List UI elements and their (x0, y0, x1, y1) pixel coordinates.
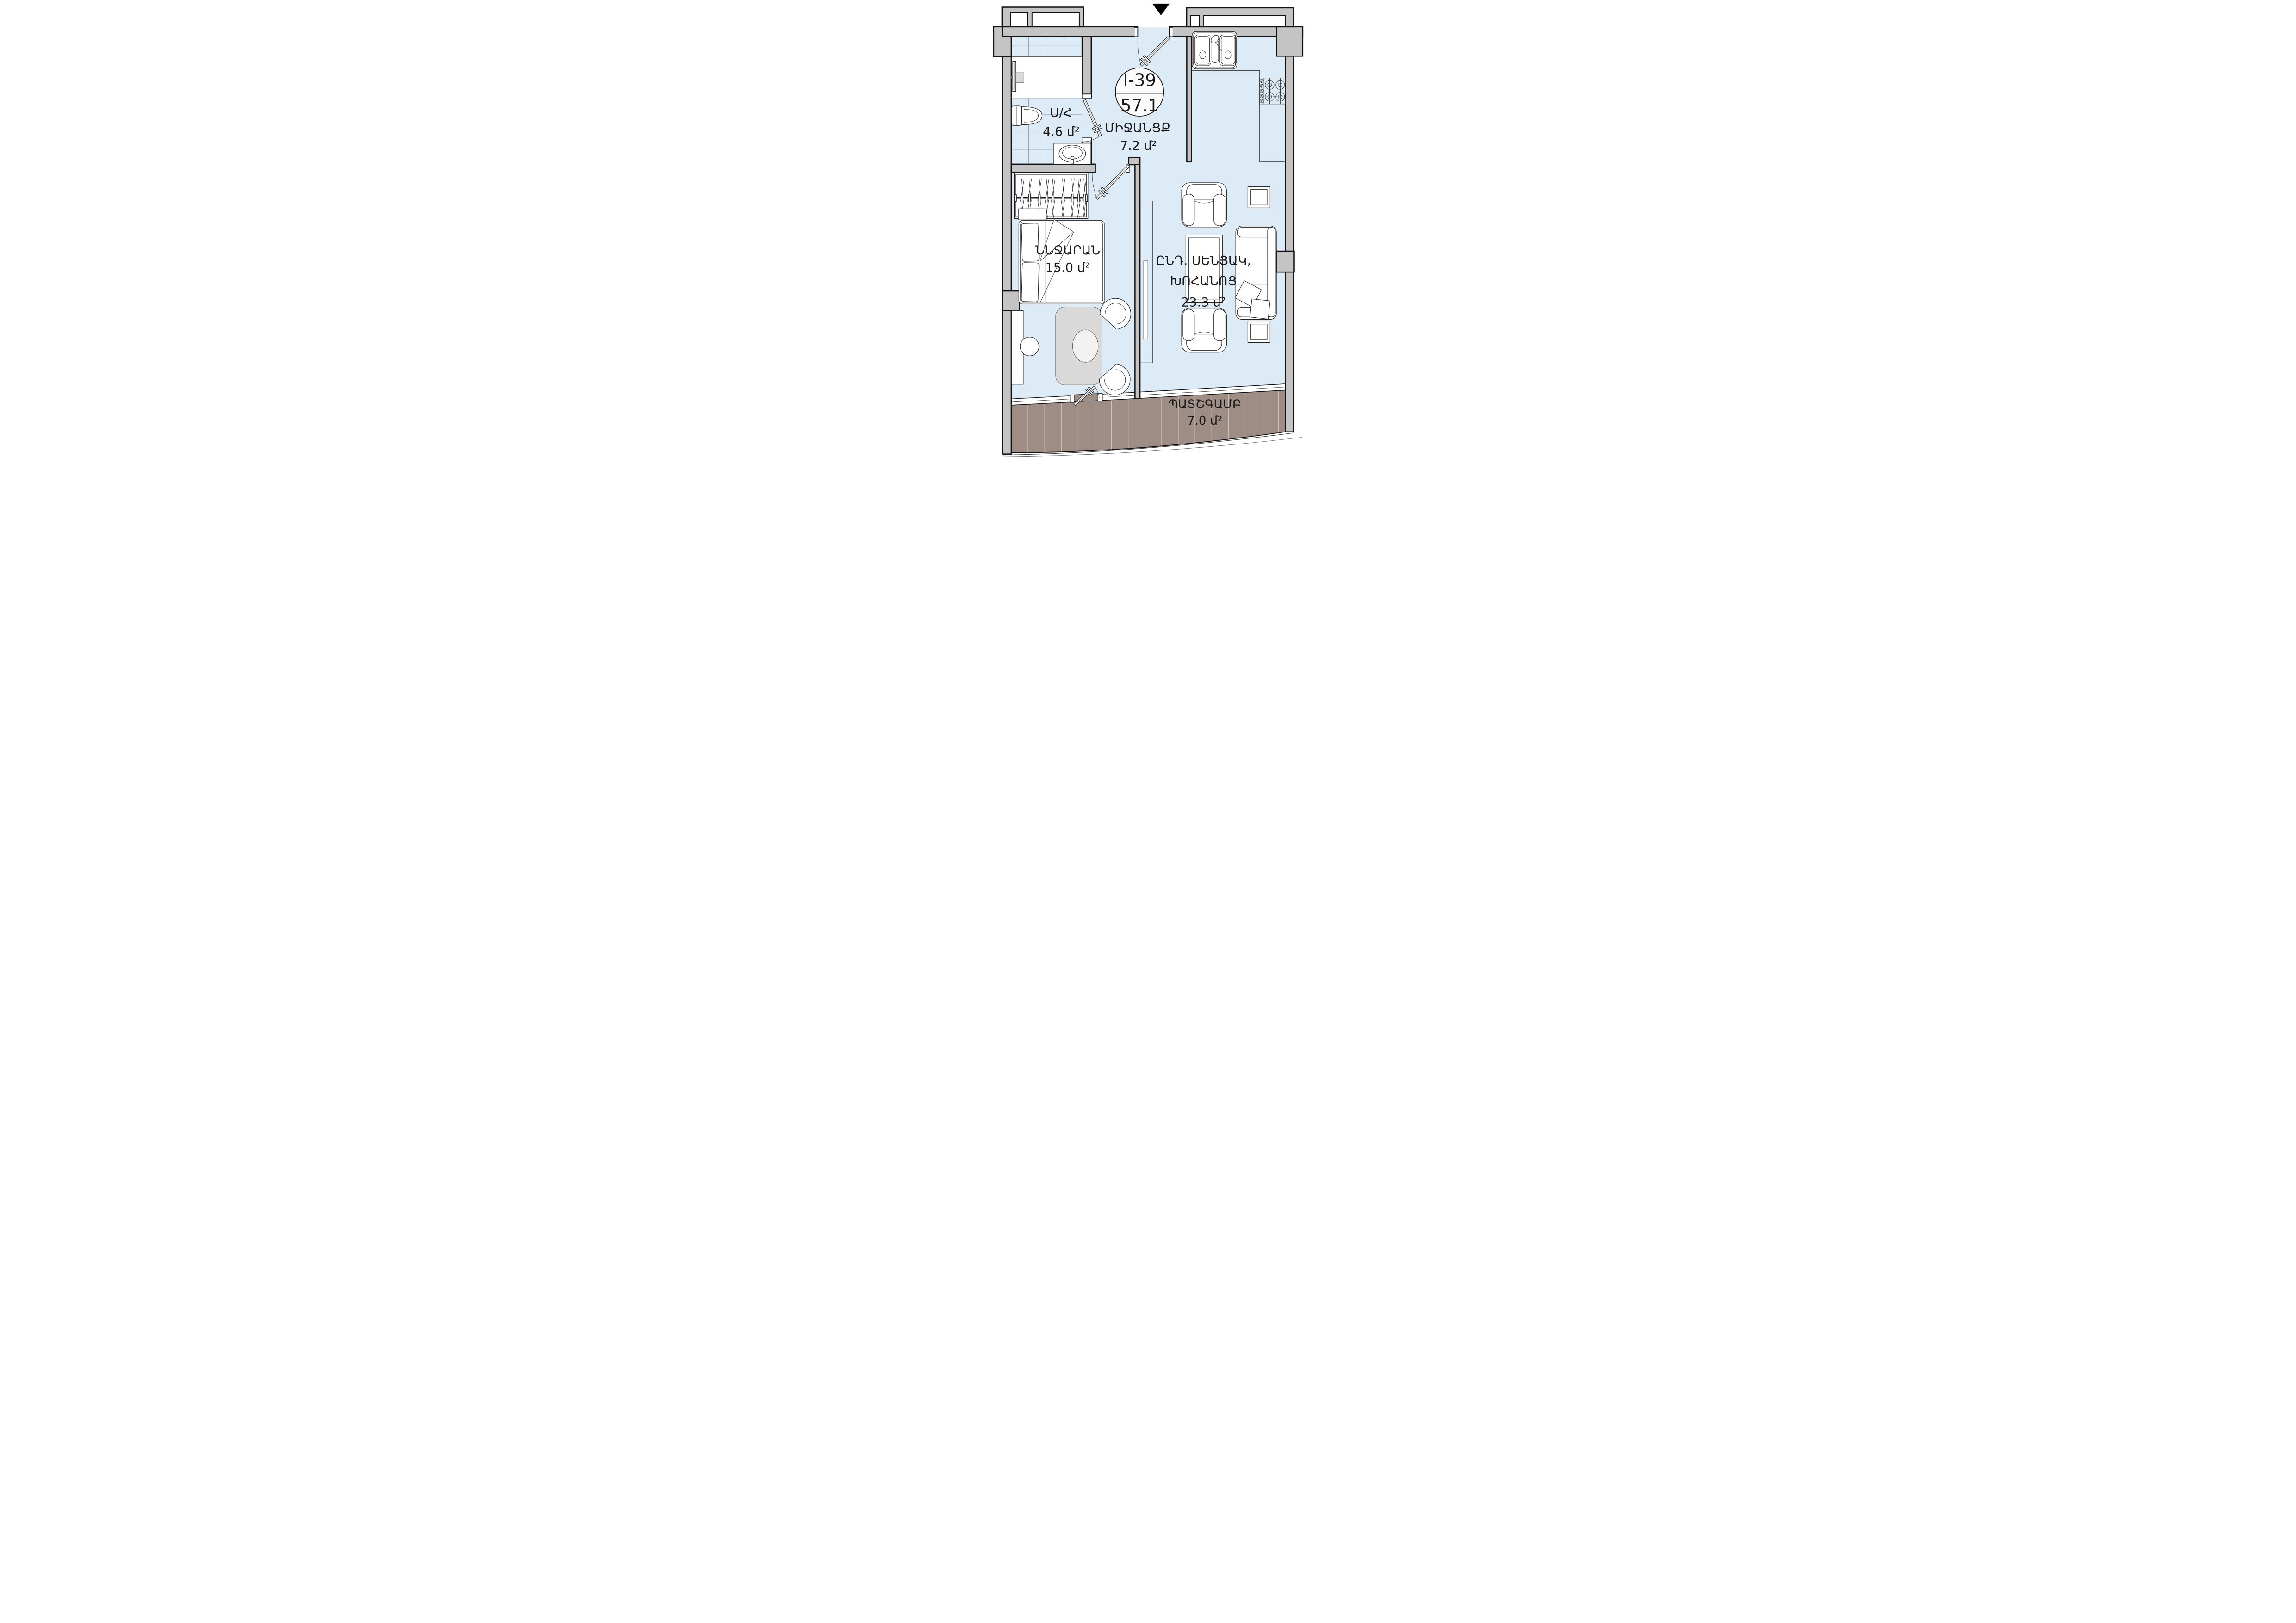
wall-pilaster-right (1276, 251, 1294, 272)
balcony-name: ՊԱՏՇԳԱՄԲ (1168, 397, 1241, 411)
bath-door-jamb-top (1082, 94, 1091, 98)
wall-corner-top-right (1276, 27, 1302, 56)
wall-right (1285, 56, 1293, 432)
wall-top-left-band (1003, 27, 1138, 37)
pillow-2 (1021, 263, 1039, 302)
wall-left (1003, 27, 1011, 454)
armchair-bottom (1182, 308, 1226, 352)
floor-plan: I-39 57.1 Ս/Հ 4.6 մ² ՄԻՋԱՆՑՔ 7.2 մ² ՆՆՋԱ… (824, 0, 1472, 458)
side-table-bottom (1248, 321, 1270, 342)
bedroom-name: ՆՆՋԱՐԱՆ (1035, 243, 1100, 258)
bedroom-area: 15.0 մ² (1045, 260, 1090, 275)
bath-door-jamb-bottom (1082, 138, 1091, 142)
wall-bathroom-right-upper (1082, 37, 1091, 94)
living-name-line2: ԽՈՀԱՆՈՑ (1170, 274, 1237, 288)
parapet-top-left (1002, 7, 1083, 27)
balcony-area: 7.0 մ² (1187, 414, 1222, 428)
bedroom-table (1055, 307, 1102, 385)
entrance-arrow-icon (1152, 4, 1169, 15)
unit-code: I-39 (1123, 70, 1156, 90)
hallway-name: ՄԻՋԱՆՑՔ (1104, 121, 1170, 136)
unit-badge: I-39 57.1 (1115, 68, 1163, 116)
tv (1144, 261, 1148, 339)
wall-pilaster-left (1003, 291, 1020, 310)
wall-kitchen-divider (1187, 37, 1191, 162)
entry-jamb-left (1134, 27, 1137, 37)
entry-threshold-floor (1138, 27, 1170, 37)
coffee-table (1186, 235, 1222, 303)
living-name-line1: ԸՆԴ. ՍԵՆՅԱԿ, (1156, 254, 1250, 268)
parapet-top-right (1187, 8, 1293, 27)
floor-plan-canvas: I-39 57.1 Ս/Հ 4.6 մ² ՄԻՋԱՆՑՔ 7.2 մ² ՆՆՋԱ… (824, 0, 1472, 458)
sofa (1235, 226, 1276, 320)
armchair-top (1182, 183, 1226, 227)
bathroom-area: 4.6 մ² (1043, 124, 1080, 139)
bathroom-name: Ս/Հ (1050, 105, 1072, 120)
wall-bedroom-door-jog (1128, 157, 1139, 165)
desk-chair (1020, 337, 1039, 356)
balcony-door-jamb-left (1070, 395, 1074, 402)
kitchen-sink (1192, 31, 1236, 69)
sofa-pillow-2 (1250, 299, 1269, 319)
bathroom-sink-vanity (1053, 143, 1090, 164)
nightstand (1018, 209, 1046, 220)
living-area: 23.3 մ² (1181, 295, 1226, 309)
wall-bathroom-bottom (1011, 164, 1095, 172)
unit-area: 57.1 (1120, 95, 1158, 116)
entry-jamb-right (1170, 27, 1173, 37)
side-table-top (1248, 186, 1270, 208)
hallway-area: 7.2 մ² (1120, 139, 1157, 153)
wall-partition-bedroom-living (1135, 164, 1140, 398)
